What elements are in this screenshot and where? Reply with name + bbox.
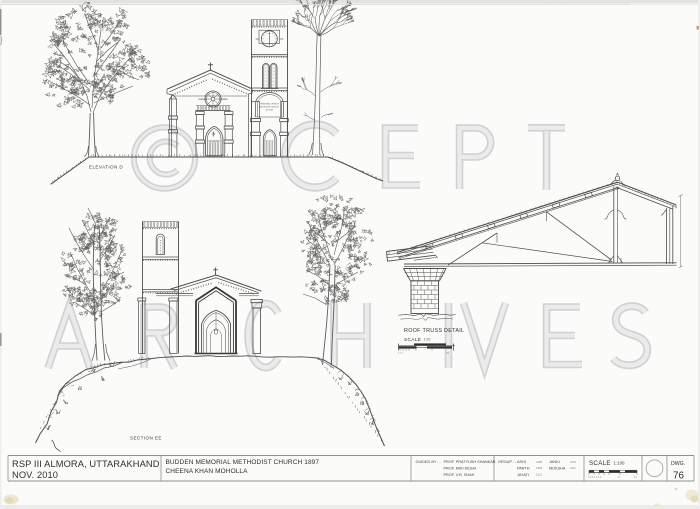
svg-text:DWG.: DWG. — [671, 461, 685, 467]
svg-text:1211: 1211 — [570, 466, 576, 470]
svg-text:GUIDED BY : -: GUIDED BY : - — [416, 460, 442, 464]
svg-text:1209: 1209 — [536, 466, 542, 470]
svg-text:1:20: 1:20 — [424, 338, 431, 342]
svg-text:1213: 1213 — [536, 472, 542, 476]
svg-text:2M: 2M — [446, 353, 449, 355]
svg-text:A.D.1897: A.D.1897 — [266, 109, 274, 112]
svg-text:ROOF TRUSS DETAIL: ROOF TRUSS DETAIL — [404, 328, 464, 334]
svg-text:1:100: 1:100 — [614, 461, 626, 466]
svg-text:0 .5 1: 0 .5 1 — [398, 353, 404, 355]
svg-text:RSP III ALMORA, UTTARAKHAND: RSP III ALMORA, UTTARAKHAND — [12, 459, 160, 469]
svg-text:1207: 1207 — [570, 460, 576, 464]
svg-text:SECTION EE: SECTION EE — [130, 436, 162, 441]
svg-text:SCALE: SCALE — [589, 460, 611, 467]
svg-text:ASHI: ASHI — [517, 460, 526, 464]
svg-text:1205: 1205 — [536, 460, 542, 464]
svg-text:SCALE: SCALE — [404, 337, 421, 343]
svg-text:0 0.5 1 1.5 2: 0 0.5 1 1.5 2 — [588, 476, 602, 479]
svg-text:PROF. PRATYUSH SHANKAR: PROF. PRATYUSH SHANKAR — [444, 460, 496, 464]
svg-text:MEMORIAL CHURCH: MEMORIAL CHURCH — [261, 103, 280, 106]
svg-text:PROF. V.R. SHAH: PROF. V.R. SHAH — [444, 473, 475, 477]
svg-text:GROUP : -: GROUP : - — [498, 460, 517, 464]
svg-text:NOV. 2010: NOV. 2010 — [12, 470, 58, 480]
svg-text:76: 76 — [673, 471, 684, 482]
svg-text:BUDDEN MEMORIAL METHODIST CHUR: BUDDEN MEMORIAL METHODIST CHURCH 1897 — [166, 459, 320, 466]
svg-text:ELEVATION D: ELEVATION D — [89, 164, 123, 169]
svg-text:JANKI: JANKI — [549, 460, 560, 464]
svg-text:PARTH: PARTH — [517, 467, 530, 471]
svg-text:MOKSHA: MOKSHA — [549, 467, 566, 471]
svg-text:PROF. MIKI DESAI: PROF. MIKI DESAI — [444, 467, 477, 471]
svg-text:CHEENA KHAN MOHOLLA: CHEENA KHAN MOHOLLA — [166, 468, 249, 475]
svg-text:JAYATI: JAYATI — [517, 473, 529, 477]
svg-text:METHODIST CHURCH: METHODIST CHURCH — [260, 107, 280, 109]
